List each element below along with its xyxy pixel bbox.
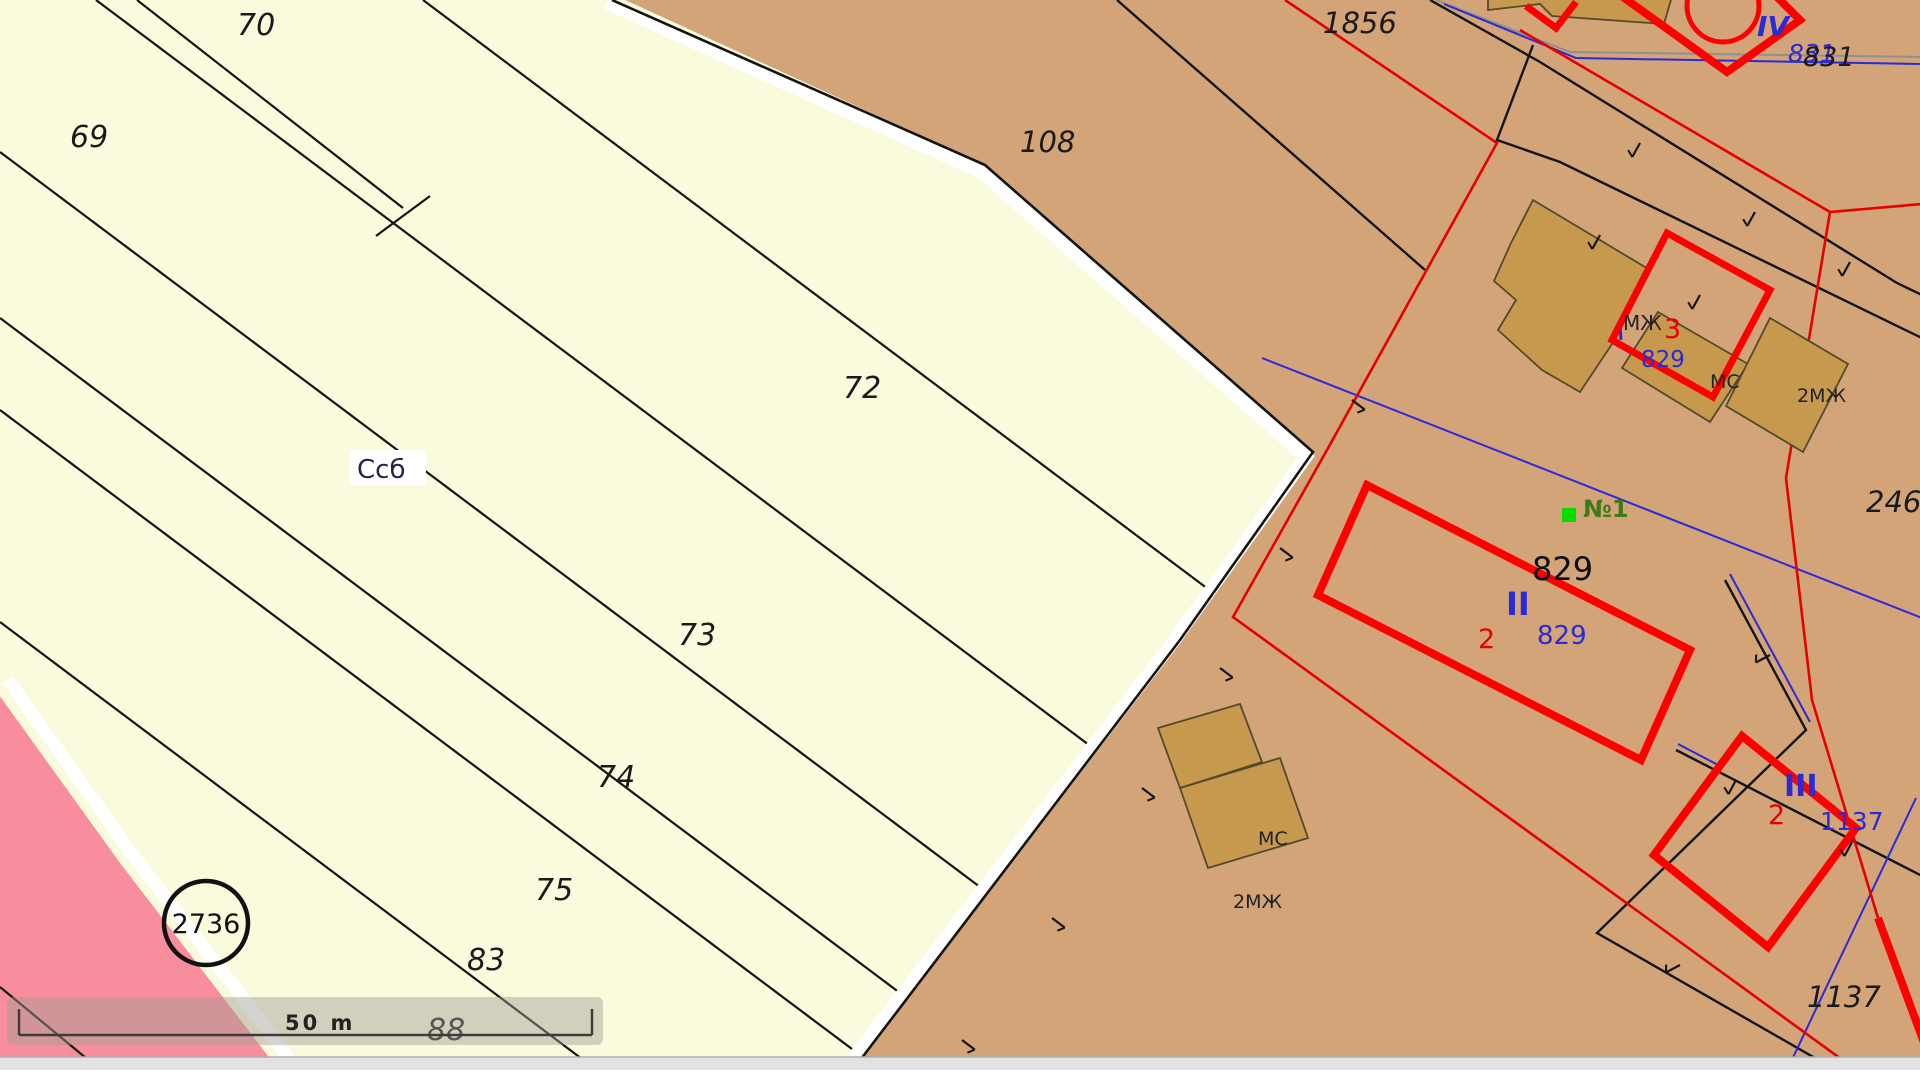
map-label-parcel-69: 69 — [70, 120, 108, 155]
map-label-building-IV: IV — [1757, 10, 1791, 43]
map-label-building-III: III — [1784, 769, 1818, 804]
map-label-parcel-829-black: 829 — [1532, 550, 1593, 588]
map-label-parcel-108: 108 — [1020, 125, 1075, 159]
map-label-parcel-74: 74 — [597, 760, 635, 795]
map-label-building-II: II — [1506, 585, 1530, 623]
map-label-parcel-829-blue-b: 829 — [1537, 621, 1587, 651]
map-label-parcel-73: 73 — [678, 618, 716, 653]
map-label-parcel-75: 75 — [535, 873, 573, 908]
map-label-parcel-1856: 1856 — [1323, 6, 1397, 40]
cadastral-map-canvas[interactable]: Ссб697072737475838810818562461137831831I… — [0, 0, 1920, 1080]
circled-parcel-number: 2736 — [172, 909, 241, 940]
map-label-parcel-1137-black: 1137 — [1807, 980, 1881, 1014]
map-label-label-mc: МС — [1710, 371, 1740, 393]
green-point-marker — [1562, 508, 1576, 522]
map-label-label-2mj: 2МЖ — [1797, 385, 1846, 407]
map-label-parcel-70: 70 — [237, 8, 275, 43]
map-label-building-2-red-a: 2 — [1478, 624, 1495, 655]
map-label-parcel-83: 83 — [467, 943, 505, 978]
map-label-parcel-831-black: 831 — [1803, 42, 1855, 73]
scrollbar-track[interactable] — [0, 1057, 1920, 1070]
map-label-parcel-1137-blue: 1137 — [1820, 807, 1884, 836]
label-ssb: Ссб — [357, 455, 405, 485]
map-label-building-3-red: 3 — [1664, 314, 1681, 345]
map-label-building-2-red-b: 2 — [1768, 800, 1785, 831]
map-label-address-n1: №1 — [1583, 495, 1629, 523]
map-label-label-mj: МЖ — [1623, 311, 1662, 335]
scale-bar-label: 50 m — [285, 1011, 355, 1035]
map-label-parcel-72: 72 — [843, 371, 881, 406]
cadastral-map-viewport[interactable]: Ссб697072737475838810818562461137831831I… — [0, 0, 1920, 1080]
map-label-parcel-246: 246 — [1866, 485, 1920, 519]
map-label-label-2mj-south: 2МЖ — [1233, 891, 1282, 913]
map-label-label-mc-south: МС — [1258, 828, 1288, 850]
map-label-parcel-829-blue-a: 829 — [1641, 347, 1685, 373]
